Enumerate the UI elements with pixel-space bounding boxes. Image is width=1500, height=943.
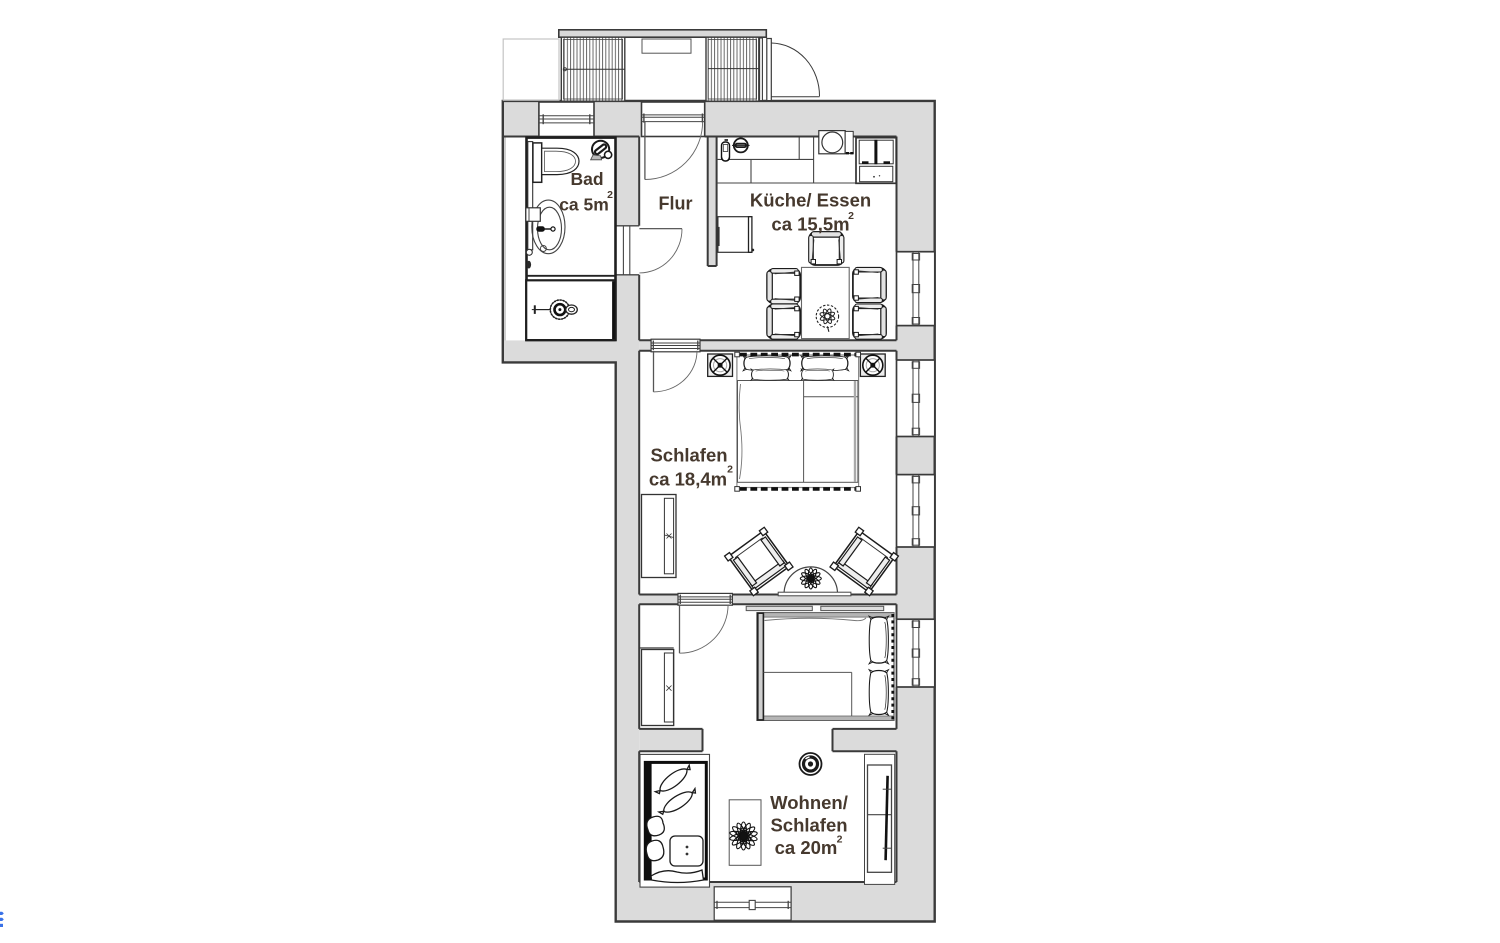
svg-text:ca 15,5m: ca 15,5m — [771, 214, 849, 235]
svg-text:2: 2 — [727, 464, 733, 476]
svg-text:2: 2 — [607, 189, 613, 201]
svg-text:Flur: Flur — [659, 193, 693, 213]
svg-text:Schlafen: Schlafen — [650, 445, 727, 466]
svg-text:Wohnen/: Wohnen/ — [770, 792, 848, 813]
svg-text:2: 2 — [837, 834, 843, 846]
svg-text:Schlafen: Schlafen — [770, 815, 847, 836]
svg-text:ca 18,4m: ca 18,4m — [649, 469, 727, 490]
svg-text:ca 20m: ca 20m — [775, 837, 838, 858]
svg-text:Küche/ Essen: Küche/ Essen — [750, 190, 871, 211]
svg-text:2: 2 — [848, 210, 854, 222]
svg-text:Bad: Bad — [570, 169, 603, 189]
svg-text:ca 5m: ca 5m — [559, 194, 609, 214]
